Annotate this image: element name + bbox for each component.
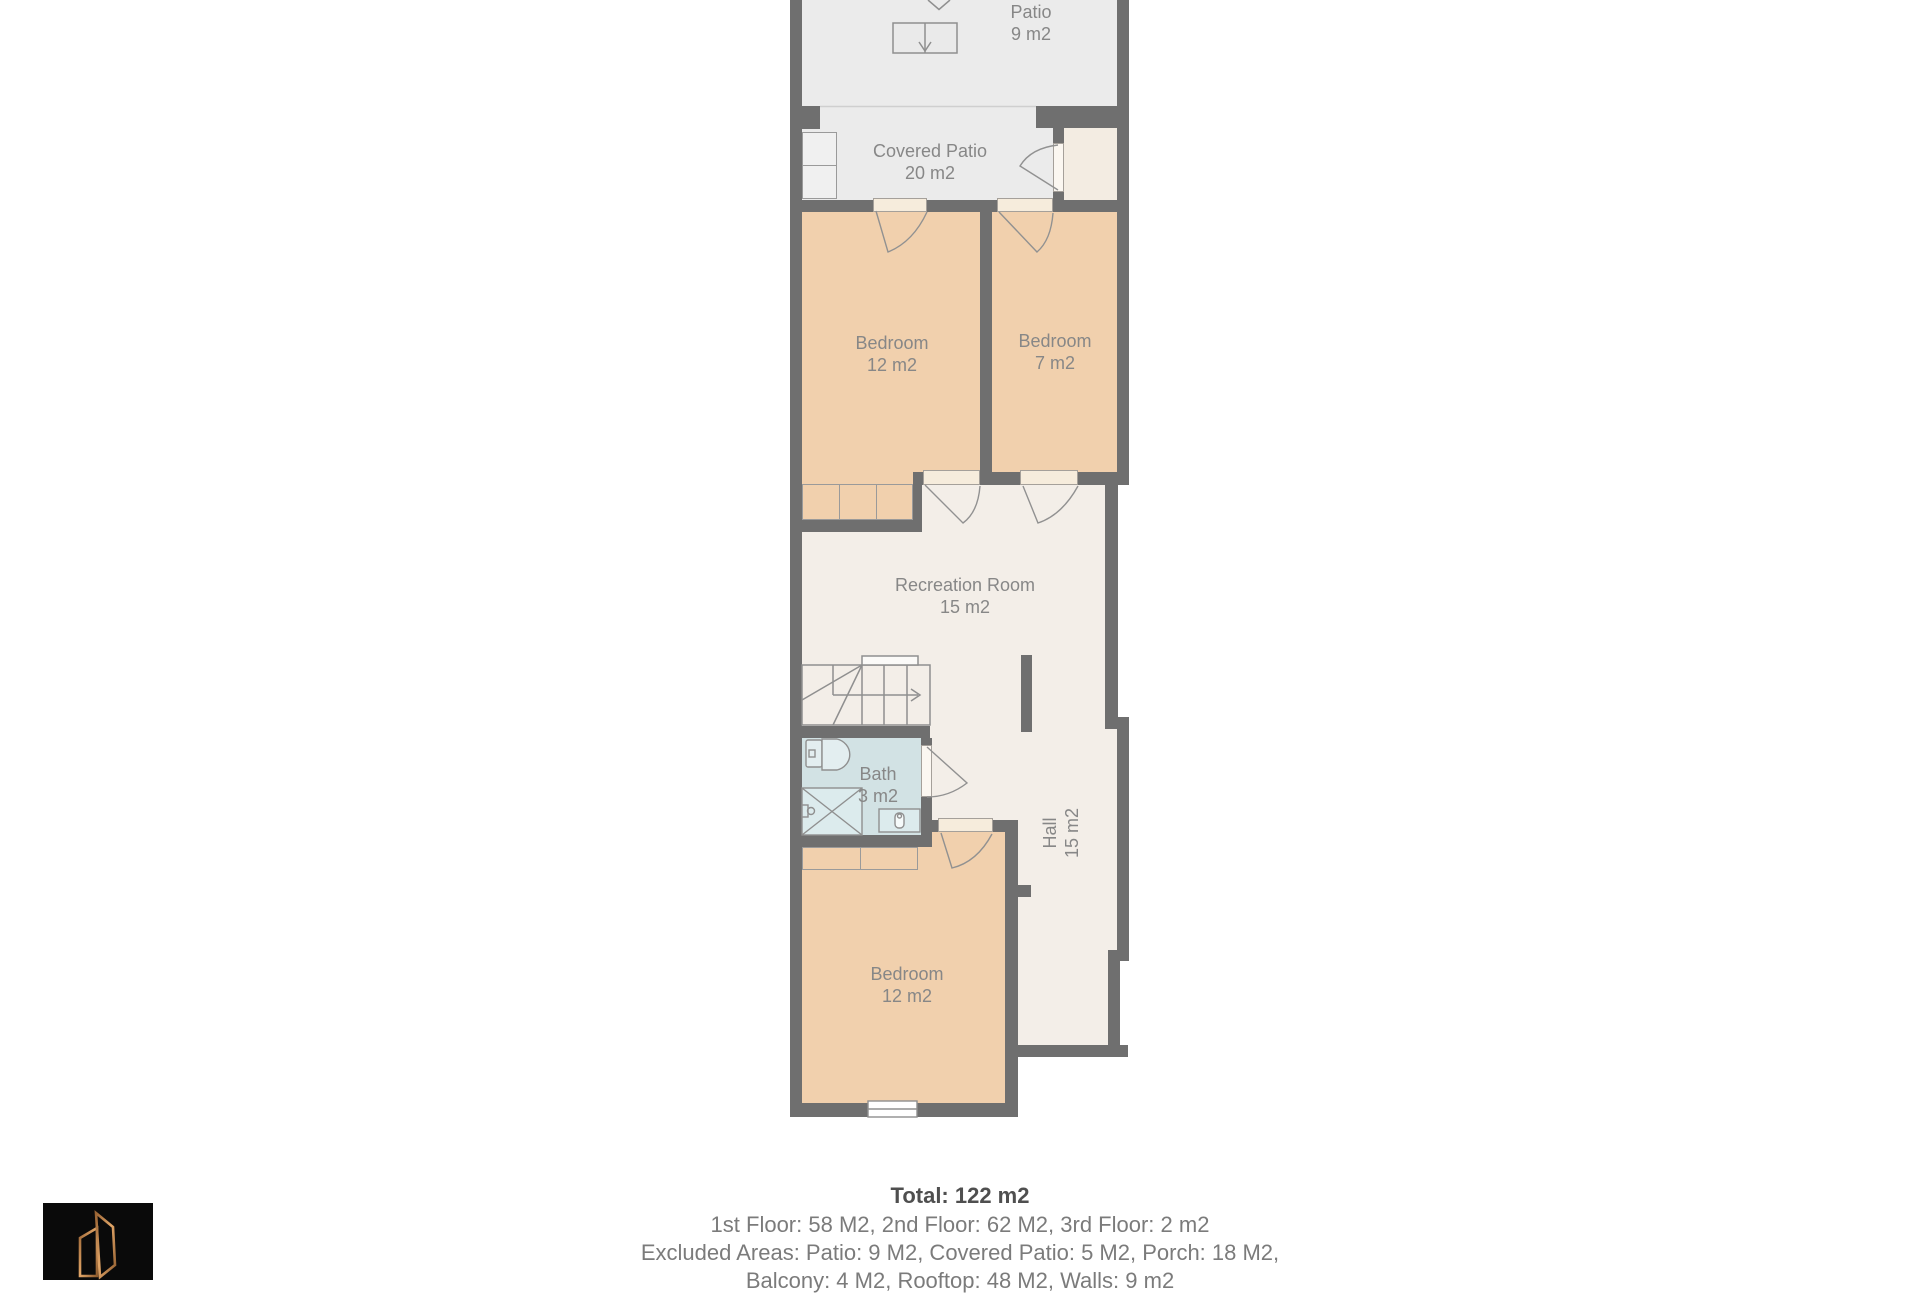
room-label-bath: Bath 3 m2 (858, 763, 898, 807)
window-symbol (868, 1101, 917, 1117)
room-name: Bedroom (1018, 330, 1091, 352)
room-name: Bedroom (870, 963, 943, 985)
room-name: Recreation Room (895, 574, 1035, 596)
chevron-icon (928, 0, 950, 10)
room-label-bedroom-3: Bedroom 12 m2 (870, 963, 943, 1007)
toilet-icon (806, 739, 850, 770)
door-arc-bedroom-1-bottom (925, 485, 980, 523)
door-arc-bath (927, 747, 967, 797)
door-arc-bedroom-2-bottom (1023, 486, 1078, 523)
room-name: Bath (858, 763, 898, 785)
door-arc-bedroom-3 (941, 833, 992, 868)
room-label-bedroom-2: Bedroom 7 m2 (1018, 330, 1091, 374)
room-area: 15 m2 (895, 596, 1035, 618)
room-label-bedroom-1: Bedroom 12 m2 (855, 332, 928, 376)
room-label-recreation: Recreation Room 15 m2 (895, 574, 1035, 618)
sink-icon (879, 809, 920, 832)
summary-excluded-continued: Balcony: 4 M2, Rooftop: 48 M2, Walls: 9 … (746, 1268, 1174, 1294)
door-arc-bedroom-1-top (876, 211, 927, 252)
summary-floors: 1st Floor: 58 M2, 2nd Floor: 62 M2, 3rd … (711, 1212, 1210, 1238)
room-label-patio: Patio 9 m2 (1010, 1, 1051, 45)
room-area: 12 m2 (870, 985, 943, 1007)
room-area: 9 m2 (1010, 23, 1051, 45)
staircase-icon (802, 656, 930, 725)
room-label-covered-patio: Covered Patio 20 m2 (873, 140, 987, 184)
stairs-down-icon (893, 23, 957, 53)
room-name: Bedroom (855, 332, 928, 354)
logo-icon (43, 1203, 153, 1280)
room-area: 12 m2 (855, 354, 928, 376)
room-area: 20 m2 (873, 162, 987, 184)
door-arc-covered-patio (1020, 145, 1058, 190)
room-area: 7 m2 (1018, 352, 1091, 374)
plan-symbols (0, 0, 1920, 1280)
page: { "rooms": [ {"id": "patio", "name": "Pa… (0, 0, 1920, 1280)
summary-total: Total: 122 m2 (891, 1183, 1030, 1209)
brand-logo (43, 1203, 153, 1280)
room-name: Covered Patio (873, 140, 987, 162)
door-arc-bedroom-2-top (999, 212, 1053, 252)
shower-icon (802, 788, 862, 835)
room-area: 15 m2 (1061, 808, 1083, 858)
room-name: Patio (1010, 1, 1051, 23)
summary-excluded: Excluded Areas: Patio: 9 M2, Covered Pat… (641, 1240, 1279, 1266)
room-area: 3 m2 (858, 785, 898, 807)
floorplan: Patio 9 m2 Covered Patio 20 m2 Bedroom 1… (0, 0, 1920, 1280)
room-label-hall: Hall 15 m2 (1039, 808, 1083, 858)
room-name: Hall (1039, 808, 1061, 858)
